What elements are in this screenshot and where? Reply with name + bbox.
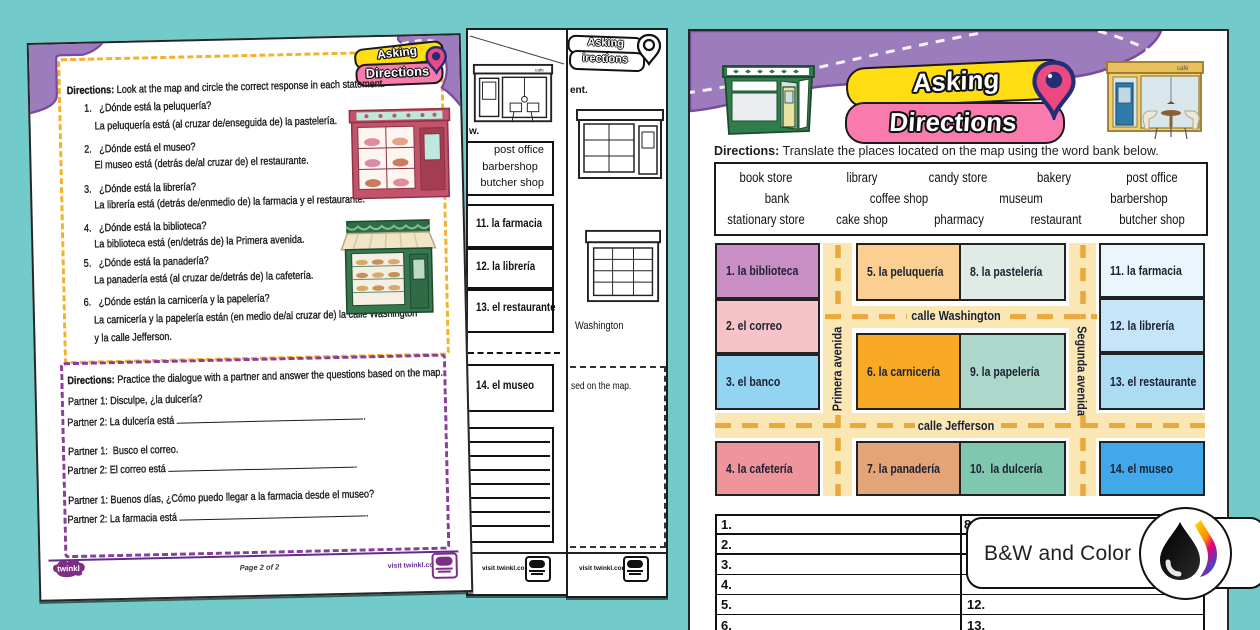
svg-text:café: café (1177, 66, 1189, 72)
svg-text:cafe: cafe (535, 68, 544, 74)
svg-text:twinkl: twinkl (57, 564, 80, 574)
